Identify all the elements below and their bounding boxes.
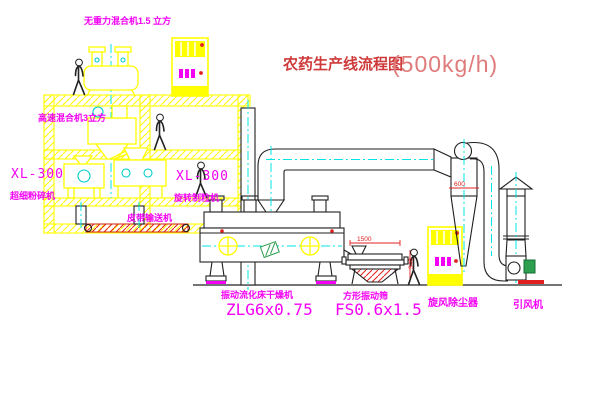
label-dryer-model: ZLG6x0.75: [226, 300, 313, 319]
dim-screen-length: 1500: [357, 236, 372, 243]
fitting-dot: [220, 229, 224, 233]
label-pulverizer-name: 超细粉碎机: [9, 190, 55, 201]
label-gravity-free-mixer: 无重力混合机1.5 立方: [83, 15, 171, 26]
label-belt-conveyor: 皮带输送机: [126, 212, 172, 223]
dryer-foot: [210, 262, 224, 276]
deck-clamp: [342, 257, 346, 264]
label-dryer-name: 振动流化床干燥机: [221, 289, 293, 300]
lifting-symbol: [301, 237, 319, 255]
vibration-pad: [316, 281, 336, 284]
label-pulverizer-model: XL-300: [11, 167, 64, 182]
induced-draft-fan: [506, 256, 544, 284]
pulverizer-leg: [68, 188, 74, 198]
label-fan: 引风机: [513, 298, 543, 311]
dim-cyclone-body: 600: [454, 181, 465, 188]
cyclone-cap: [455, 143, 472, 160]
dim-screen-height: 340: [408, 258, 415, 269]
button: [191, 69, 195, 78]
fan-base: [518, 280, 544, 284]
top-port: [244, 200, 256, 212]
cabinet-vent: [175, 41, 205, 57]
fan-housing: [506, 256, 526, 280]
screen-leg: [395, 269, 398, 284]
diagram-title: 农药生产线流程图: [282, 55, 403, 73]
fan-motor: [524, 260, 535, 273]
cabinet-base: [172, 86, 208, 96]
indicator-light-icon: [200, 43, 204, 47]
button: [441, 257, 445, 266]
port-cap: [312, 196, 328, 200]
indicator-light-icon: [454, 259, 458, 263]
dryer-foot: [318, 262, 332, 276]
label-granulator-model: XL-300: [176, 169, 229, 184]
screen-inlet-funnel: [352, 246, 366, 254]
human-figure-2: [155, 114, 166, 149]
dryer-hood: [204, 212, 340, 228]
fluid-bed-dryer: [200, 196, 358, 284]
top-port: [314, 200, 326, 212]
pulverizer-body: [64, 164, 104, 188]
cabinet-vent: [431, 230, 459, 245]
button: [185, 69, 189, 78]
inlet-cap: [89, 47, 105, 52]
cad-flow-diagram: 无重力混合机1.5 立方 农药生产线流程图 (500kg/h) 高速混合机3立方…: [0, 0, 600, 403]
inlet-cap: [115, 47, 131, 52]
mixer-inlet: [92, 52, 102, 66]
fitting-dot: [330, 229, 334, 233]
human-figure-1: [74, 59, 85, 94]
label-granulator-name: 旋转制粒机: [173, 192, 219, 203]
belt: [86, 224, 188, 232]
mixer-drive: [112, 106, 127, 118]
cyclone-inlet-reducer: [434, 149, 451, 177]
vibration-pad: [206, 281, 226, 284]
diagram-svg: 无重力混合机1.5 立方 农药生产线流程图 (500kg/h) 高速混合机3立方…: [0, 0, 600, 403]
screen-leg: [352, 269, 355, 284]
label-cyclone: 旋风除尘器: [427, 296, 479, 309]
button: [179, 69, 183, 78]
indicator-light-icon: [199, 71, 203, 75]
pulverizer: [64, 156, 104, 198]
foot-base: [316, 276, 336, 281]
belt-conveyor: [85, 224, 190, 232]
mixer-inlet: [118, 52, 128, 66]
screen-deck: [348, 254, 402, 260]
lifting-symbol: [219, 237, 237, 255]
exhaust-duct: [258, 146, 458, 214]
button: [447, 257, 451, 266]
foot-base: [206, 276, 226, 281]
mixer-vessel: [84, 66, 138, 90]
screen-deck: [346, 260, 404, 265]
button: [435, 257, 439, 266]
vibrating-screen: [342, 240, 410, 284]
screen-deck: [350, 265, 400, 269]
label-screen-model: FS0.6x1.5: [335, 300, 422, 319]
screen-cone: [352, 269, 398, 282]
control-cabinet-1: [172, 38, 208, 96]
diagram-title-capacity: (500kg/h): [392, 51, 498, 77]
cabinet-base: [428, 274, 462, 285]
duct-inner-wall: [284, 170, 434, 200]
label-high-speed-mixer: 高速混合机3立方: [38, 112, 106, 123]
pulverizer-leg: [94, 188, 100, 198]
pulverizer-funnel: [74, 156, 92, 164]
